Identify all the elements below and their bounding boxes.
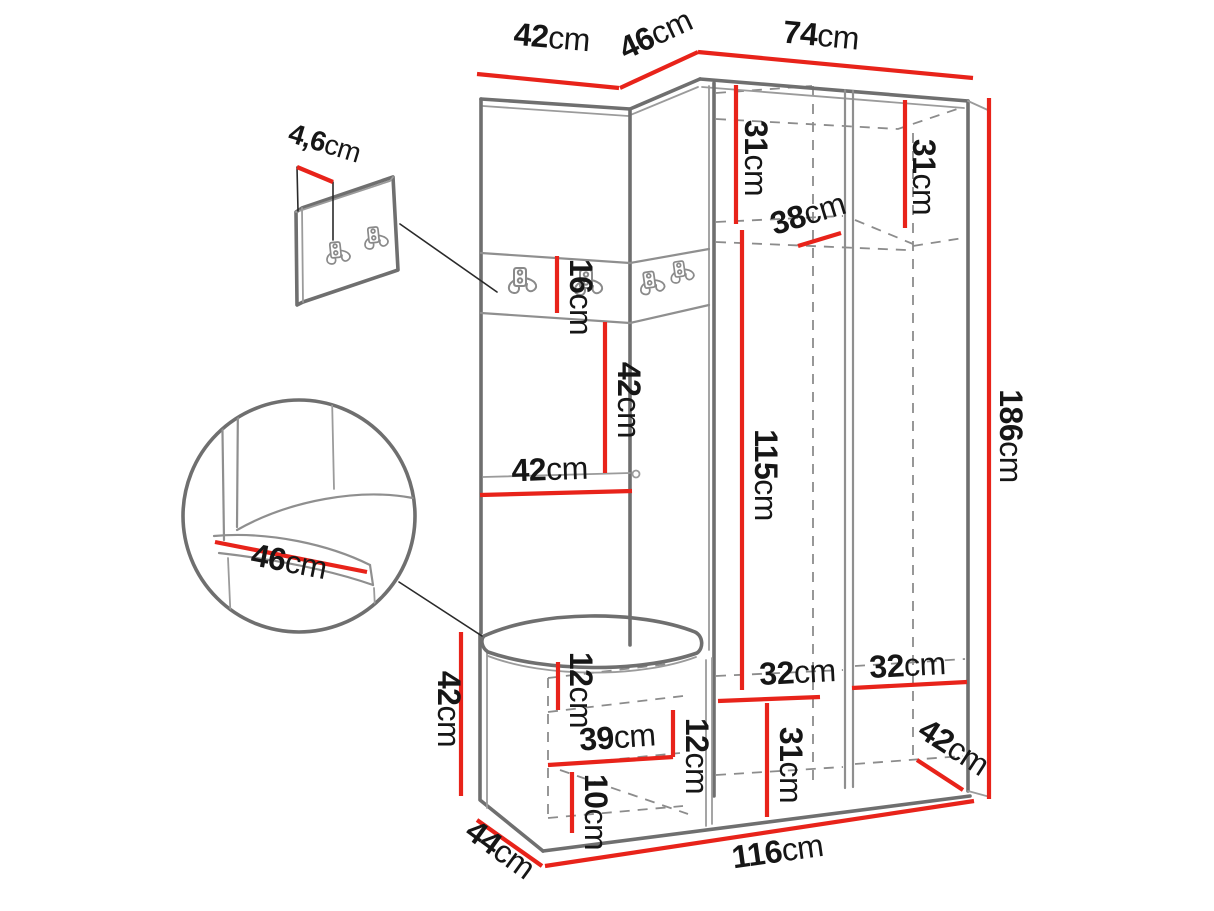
dim-bench-plinth-height: 10cm <box>572 772 614 850</box>
dim-bottom-left-width: 32cm <box>718 652 836 701</box>
coat-hook-icon <box>509 268 536 293</box>
dim-label-bench-shelf-height: 12cm <box>679 718 715 794</box>
wall-hook-panel <box>296 177 398 305</box>
detail-leader-line <box>399 582 482 636</box>
dim-bottom-right-width: 32cm <box>852 645 967 688</box>
dim-bench-shelf-height: 12cm <box>673 710 715 794</box>
dim-bench-depth: 44cm <box>459 812 542 886</box>
dim-total-height: 186cm <box>989 98 1029 799</box>
dim-shelf-right-height: 31cm <box>905 100 942 228</box>
coat-hook-icon <box>638 270 665 295</box>
dim-bottom-shelf-height: 31cm <box>767 703 809 817</box>
dim-label-bench-plinth-height: 10cm <box>578 774 614 850</box>
dim-label-seat-depth-detail: 46cm <box>248 536 330 586</box>
dim-label-bottom-right-width: 32cm <box>868 645 946 685</box>
dim-label-backrest-height: 42cm <box>611 362 647 438</box>
dim-label-bench-depth: 44cm <box>459 812 542 886</box>
dim-label-hook-panel-thickness: 4,6cm <box>285 117 365 168</box>
dim-wardrobe-depth: 42cm <box>912 711 996 790</box>
diagram-canvas: 42cm 46cm 74cm 4,6cm 31cm 31cm 38cm 16cm… <box>0 0 1214 911</box>
dim-label-bench-height: 42cm <box>431 671 467 747</box>
dim-backrest-height: 42cm <box>605 322 647 473</box>
dim-label-bottom-shelf-height: 31cm <box>773 727 809 803</box>
dim-label-top-right-width: 74cm <box>781 13 860 56</box>
dim-label-total-height: 186cm <box>993 389 1029 483</box>
dim-shelf-depth: 38cm <box>766 185 849 246</box>
dim-label-bench-shelf-width: 39cm <box>578 716 657 757</box>
dim-shelf-left-height: 31cm <box>736 85 774 224</box>
coat-hook-icon <box>669 260 695 284</box>
dim-bench-top-inset: 12cm <box>558 652 599 728</box>
dim-hook-strip-height: 16cm <box>557 256 599 335</box>
dim-label-backrest-width: 42cm <box>511 450 588 489</box>
tall-cabinet-section <box>481 79 709 645</box>
dim-label-top-left-width: 42cm <box>512 16 591 59</box>
dim-backrest-width: 42cm <box>480 450 632 495</box>
dim-bench-height: 42cm <box>431 632 467 796</box>
dim-label-shelf-right-height: 31cm <box>906 139 942 215</box>
dim-top-corner-width: 46cm <box>613 2 698 88</box>
coat-hook-icon <box>363 226 388 250</box>
dim-label-bottom-left-width: 32cm <box>758 652 836 692</box>
coat-hook-icon <box>325 241 350 265</box>
dim-seat-depth-detail: 46cm <box>215 536 367 586</box>
dim-label-hook-strip-height: 16cm <box>563 259 599 335</box>
seat-detail-circle <box>183 396 482 650</box>
thickness-extension-line <box>297 167 298 211</box>
dim-label-bench-top-inset: 12cm <box>563 652 599 728</box>
dim-top-left-width: 42cm <box>477 16 619 88</box>
dim-label-wardrobe-depth: 42cm <box>912 711 996 783</box>
furniture-dimension-diagram: 42cm 46cm 74cm 4,6cm 31cm 31cm 38cm 16cm… <box>0 0 1214 911</box>
dim-wardrobe-inner-height: 115cm <box>742 230 784 690</box>
dim-top-right-width: 74cm <box>698 13 973 78</box>
dim-label-wardrobe-inner-height: 115cm <box>748 429 784 521</box>
dim-label-shelf-left-height: 31cm <box>738 120 774 196</box>
